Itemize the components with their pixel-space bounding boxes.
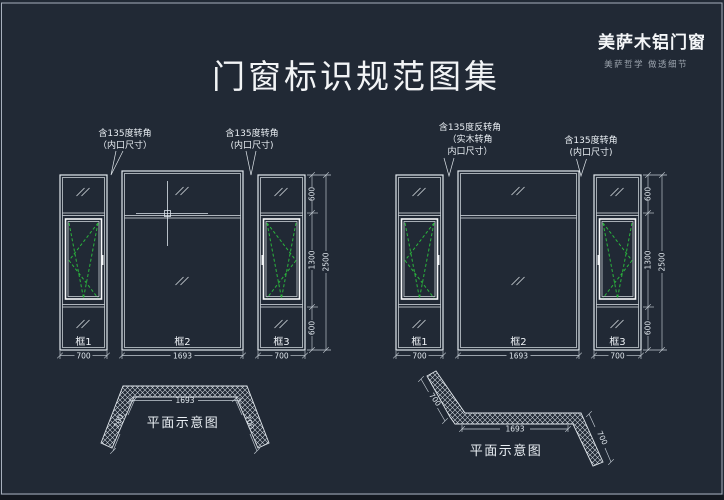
total-height-dim-label: 2500 xyxy=(322,252,331,271)
glass-mark xyxy=(413,320,421,328)
cad-line xyxy=(438,408,446,421)
glass-mark xyxy=(176,277,184,285)
window-handle xyxy=(437,255,440,265)
window-handle xyxy=(598,255,601,265)
glass-mark xyxy=(280,188,288,196)
plan-view-title: 平面示意图 xyxy=(147,415,220,431)
tilt-turn-symbol xyxy=(267,223,296,261)
total-height-dim-label: 2500 xyxy=(658,252,667,271)
dim-tick xyxy=(608,459,614,465)
tilt-turn-symbol xyxy=(603,223,632,261)
plan-view-title: 平面示意图 xyxy=(470,443,543,459)
sash-frame-inner xyxy=(68,222,99,297)
width-dim-label: 700 xyxy=(274,352,289,361)
glass-mark xyxy=(275,188,283,196)
height-dim-label: 600 xyxy=(644,321,653,336)
glass-mark xyxy=(77,320,85,328)
glass-mark xyxy=(517,187,525,195)
window-frame-inner xyxy=(399,178,441,348)
glass-mark xyxy=(611,188,619,196)
cad-drawing: 含135度转角 （内口尺寸） 含135度转角 (内口尺寸) 框1 框2 框3 7… xyxy=(0,0,724,500)
glass-mark xyxy=(275,320,283,328)
frame-label: 框1 xyxy=(411,335,427,348)
sash-frame-inner xyxy=(602,222,633,297)
leader-arrow xyxy=(246,151,256,175)
right-elevation-linework xyxy=(393,171,667,359)
tilt-turn-symbol xyxy=(267,261,296,299)
glass-mark xyxy=(82,188,90,196)
glass-mark xyxy=(517,277,525,285)
annotation-corner-label: 内口尺寸） xyxy=(447,145,492,157)
window-frame-inner xyxy=(597,178,639,348)
annotation-corner-label: 含135度转角 xyxy=(564,134,617,146)
annotation-corner-label: (内口尺寸) xyxy=(230,139,273,151)
annotation-corner-label: 含135度转角 xyxy=(225,127,278,139)
height-dim-label: 1300 xyxy=(308,250,317,269)
frame-label: 框2 xyxy=(174,335,190,348)
glass-mark xyxy=(512,187,520,195)
window-frame-inner xyxy=(125,174,241,348)
cad-line xyxy=(589,414,595,427)
height-dim-label: 600 xyxy=(308,321,317,336)
window-frame xyxy=(458,171,579,350)
width-dim-label: 700 xyxy=(610,352,625,361)
window-handle xyxy=(262,255,265,265)
leader-arrow xyxy=(111,151,123,175)
sash-frame xyxy=(66,219,102,299)
height-dim-label: 1300 xyxy=(644,250,653,269)
sash-frame-inner xyxy=(266,222,297,297)
plan-dim-label: 1693 xyxy=(505,425,524,434)
plan-dim-label: 700 xyxy=(595,429,609,446)
window-frame xyxy=(594,175,641,350)
glass-mark xyxy=(77,188,85,196)
left-elevation-linework xyxy=(57,171,331,359)
tilt-turn-symbol xyxy=(69,261,98,299)
leader-arrow xyxy=(444,158,454,176)
frame-label: 框1 xyxy=(75,335,91,348)
tilt-turn-symbol xyxy=(420,223,435,298)
glass-mark xyxy=(616,320,624,328)
tilt-turn-symbol xyxy=(405,223,434,261)
tilt-turn-symbol xyxy=(603,223,618,298)
glass-mark xyxy=(616,188,624,196)
height-dim-label: 600 xyxy=(644,187,653,202)
tilt-turn-symbol xyxy=(267,223,282,298)
glass-mark xyxy=(413,188,421,196)
width-dim-label: 1693 xyxy=(173,352,192,361)
annotation-corner-label: （实木转角 xyxy=(447,133,492,145)
tilt-turn-symbol xyxy=(84,223,99,298)
bottom-strip xyxy=(0,495,724,500)
tilt-turn-symbol xyxy=(282,223,297,298)
window-frame-inner xyxy=(461,174,577,348)
window-frame xyxy=(396,175,443,350)
tilt-turn-symbol xyxy=(618,223,633,298)
window-frame-inner xyxy=(63,178,105,348)
glass-mark xyxy=(82,320,90,328)
glass-mark xyxy=(181,277,189,285)
cad-viewport: 门窗标识规范图集 美萨木铝门窗 美萨哲学 做透细节 含135度转角 （内口尺寸）… xyxy=(0,0,724,500)
glass-mark xyxy=(176,187,184,195)
glass-mark xyxy=(418,188,426,196)
frame-label: 框3 xyxy=(273,335,289,348)
sash-frame xyxy=(402,219,438,299)
frame-label: 框2 xyxy=(510,335,526,348)
frame-label: 框3 xyxy=(609,335,625,348)
tilt-turn-symbol xyxy=(405,261,434,299)
sash-frame-inner xyxy=(404,222,435,297)
window-frame xyxy=(60,175,107,350)
cad-line xyxy=(421,379,429,392)
tilt-turn-symbol xyxy=(69,223,98,261)
window-handle xyxy=(101,255,104,265)
glass-mark xyxy=(280,320,288,328)
window-frame-inner xyxy=(261,178,303,348)
dim-tick xyxy=(254,448,260,454)
sash-frame xyxy=(264,219,300,299)
glass-mark xyxy=(512,277,520,285)
height-dim-label: 600 xyxy=(308,187,317,202)
glass-mark xyxy=(181,187,189,195)
dim-tick xyxy=(110,448,116,454)
tilt-turn-symbol xyxy=(69,223,84,298)
leader-arrow xyxy=(577,159,587,176)
window-frame xyxy=(258,175,305,350)
width-dim-label: 700 xyxy=(412,352,427,361)
tilt-turn-symbol xyxy=(603,261,632,299)
window-frame xyxy=(122,171,243,350)
annotation-corner-label: (内口尺寸) xyxy=(569,146,612,158)
annotation-corner-label: （内口尺寸） xyxy=(98,139,152,151)
annotation-corner-label: 含135度反转角 xyxy=(439,121,501,133)
width-dim-label: 1693 xyxy=(509,352,528,361)
dim-tick xyxy=(586,411,592,417)
plan-dim-label: 1693 xyxy=(175,396,194,405)
glass-mark xyxy=(418,320,426,328)
glass-mark xyxy=(611,320,619,328)
tilt-turn-symbol xyxy=(405,223,420,298)
cad-line xyxy=(605,448,611,462)
width-dim-label: 700 xyxy=(76,352,91,361)
dim-tick xyxy=(442,418,448,424)
annotation-corner-label: 含135度转角 xyxy=(98,127,151,139)
dim-tick xyxy=(418,376,424,382)
sash-frame xyxy=(600,219,636,299)
